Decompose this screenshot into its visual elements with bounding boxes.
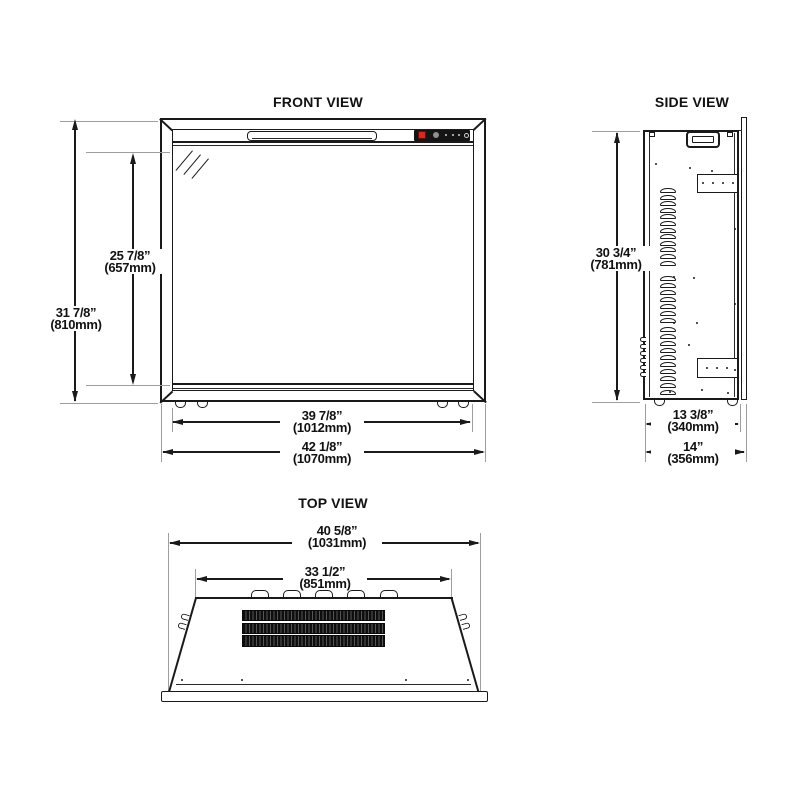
- rear-edge-bump: [640, 365, 646, 370]
- side-vent-louver: [660, 341, 676, 346]
- dim-mm: (1070mm): [280, 453, 364, 465]
- side-top-tab: [727, 132, 733, 137]
- side-front-flange: [741, 117, 747, 400]
- extension-line: [451, 569, 452, 597]
- flame-button-icon: [433, 132, 439, 138]
- screw-dot: [181, 679, 183, 681]
- extension-line: [168, 533, 169, 696]
- side-vent-louver: [660, 214, 676, 219]
- rear-edge-bump: [640, 351, 646, 356]
- dim-mm: (851mm): [283, 578, 367, 590]
- front-top-vent-slot: [247, 131, 377, 141]
- arrow-up-icon: [72, 119, 78, 130]
- panel-dot-icon: [452, 134, 454, 136]
- side-vent-louver: [660, 234, 676, 239]
- arrow-right-icon: [734, 449, 745, 455]
- edge-notch: [180, 613, 189, 620]
- arrow-right-icon: [474, 449, 485, 455]
- rear-edge-bump: [640, 358, 646, 363]
- top-rear-tab: [347, 590, 365, 597]
- side-vent-louver: [660, 247, 676, 252]
- extension-line: [746, 404, 747, 462]
- extension-line: [86, 152, 170, 153]
- edge-notch: [461, 622, 470, 629]
- control-panel: [414, 130, 470, 141]
- dimension-line: [74, 123, 76, 401]
- front-top-vent-slot-line: [252, 138, 372, 139]
- extension-line: [86, 385, 170, 386]
- side-vent-louver: [660, 241, 676, 246]
- dim-mm: (781mm): [579, 259, 653, 271]
- top-right-slant-edge: [451, 599, 480, 695]
- top-rear-tab: [380, 590, 398, 597]
- arrow-right-icon: [460, 419, 471, 425]
- screw-dot: [405, 679, 407, 681]
- dim-mm: (810mm): [39, 319, 113, 331]
- side-vent-louver: [660, 228, 676, 233]
- front-foot: [175, 402, 186, 408]
- technical-drawing-canvas: FRONT VIEW 31 7/8” (810mm): [0, 0, 800, 800]
- side-vent-louver-column: [660, 0, 677, 400]
- rear-edge-bump: [640, 344, 646, 349]
- grille-row: [242, 623, 385, 634]
- side-body-depth-dim: 13 3/8” (340mm): [651, 408, 735, 433]
- front-base-trim-line: [173, 388, 473, 389]
- arrow-down-icon: [614, 390, 620, 401]
- side-vent-louver: [660, 290, 676, 295]
- front-foot: [458, 402, 469, 408]
- top-opening-width-dim: 33 1/2” (851mm): [283, 565, 367, 590]
- top-front-inner-line: [176, 684, 471, 685]
- extension-line: [485, 404, 486, 462]
- front-firebox-width-dim: 39 7/8” (1012mm): [280, 409, 364, 434]
- dim-mm: (356mm): [651, 453, 735, 465]
- arrow-right-icon: [440, 576, 451, 582]
- extension-line: [60, 403, 158, 404]
- side-view-title: SIDE VIEW: [622, 94, 762, 110]
- side-overall-depth-dim: 14” (356mm): [651, 440, 735, 465]
- dim-mm: (340mm): [651, 421, 735, 433]
- heater-grille: [242, 610, 385, 647]
- dim-mm: (1012mm): [280, 422, 364, 434]
- side-vent-louver: [660, 283, 676, 288]
- panel-ring-icon: [464, 133, 469, 138]
- side-vent-louver: [660, 327, 676, 332]
- side-vent-louver: [660, 334, 676, 339]
- front-glass-height-dim: 25 7/8” (657mm): [93, 249, 167, 274]
- extension-line: [195, 569, 196, 597]
- front-glass-bottom-line: [173, 383, 473, 385]
- grille-row: [242, 635, 385, 647]
- top-front-flange: [161, 691, 488, 702]
- side-foot: [654, 400, 665, 406]
- extension-line: [472, 404, 473, 432]
- front-foot: [197, 402, 208, 408]
- edge-notch: [177, 622, 186, 629]
- rear-edge-bump: [640, 337, 646, 342]
- handle-inner: [692, 136, 714, 143]
- power-button-icon: [418, 131, 426, 139]
- arrow-left-icon: [172, 419, 183, 425]
- side-vent-louver: [660, 348, 676, 353]
- side-vent-louver: [660, 188, 676, 193]
- top-rear-tab: [251, 590, 269, 597]
- front-view-title: FRONT VIEW: [240, 94, 396, 110]
- side-vent-louver: [660, 390, 676, 395]
- side-vent-louver: [660, 297, 676, 302]
- arrow-up-icon: [614, 132, 620, 143]
- front-foot: [437, 402, 448, 408]
- side-vent-louver: [660, 355, 676, 360]
- arrow-up-icon: [130, 153, 136, 164]
- top-rear-tab: [283, 590, 301, 597]
- arrow-down-icon: [72, 391, 78, 402]
- top-overall-width-dim: 40 5/8” (1031mm): [292, 524, 382, 549]
- side-vent-louver: [660, 201, 676, 206]
- side-height-dim: 30 3/4” (781mm): [579, 246, 653, 271]
- side-vent-louver: [660, 383, 676, 388]
- top-view-title: TOP VIEW: [258, 495, 408, 511]
- extension-line: [592, 402, 640, 403]
- screw-dot: [241, 679, 243, 681]
- top-rear-tab: [315, 590, 333, 597]
- arrow-left-icon: [162, 449, 173, 455]
- grille-row: [242, 610, 385, 621]
- side-top-tab: [649, 132, 655, 137]
- rear-edge-bump: [640, 372, 646, 377]
- front-top-rail-line: [173, 141, 473, 143]
- arrow-down-icon: [130, 374, 136, 385]
- side-vent-louver: [660, 311, 676, 316]
- arrow-right-icon: [469, 540, 480, 546]
- side-vent-louver: [660, 362, 676, 367]
- panel-dot-icon: [458, 134, 460, 136]
- side-foot: [727, 400, 738, 406]
- side-vent-louver: [660, 254, 676, 259]
- side-vent-louver: [660, 304, 676, 309]
- dim-mm: (657mm): [93, 262, 167, 274]
- side-vent-louver: [660, 369, 676, 374]
- dim-mm: (1031mm): [292, 537, 382, 549]
- extension-line: [480, 533, 481, 696]
- arrow-left-icon: [169, 540, 180, 546]
- side-vent-louver: [660, 376, 676, 381]
- front-inner-frame: [172, 129, 474, 391]
- screw-dot: [467, 679, 469, 681]
- edge-notch: [458, 613, 467, 620]
- side-vent-louver: [660, 208, 676, 213]
- side-vent-louver: [660, 195, 676, 200]
- arrow-left-icon: [196, 576, 207, 582]
- extension-line: [740, 404, 741, 432]
- side-vent-louver: [660, 221, 676, 226]
- side-vent-louver: [660, 261, 676, 266]
- panel-dot-icon: [445, 134, 447, 136]
- side-flange-connector: [739, 130, 742, 131]
- front-top-rail-line: [173, 145, 473, 146]
- front-overall-height-dim: 31 7/8” (810mm): [39, 306, 113, 331]
- front-overall-width-dim: 42 1/8” (1070mm): [280, 440, 364, 465]
